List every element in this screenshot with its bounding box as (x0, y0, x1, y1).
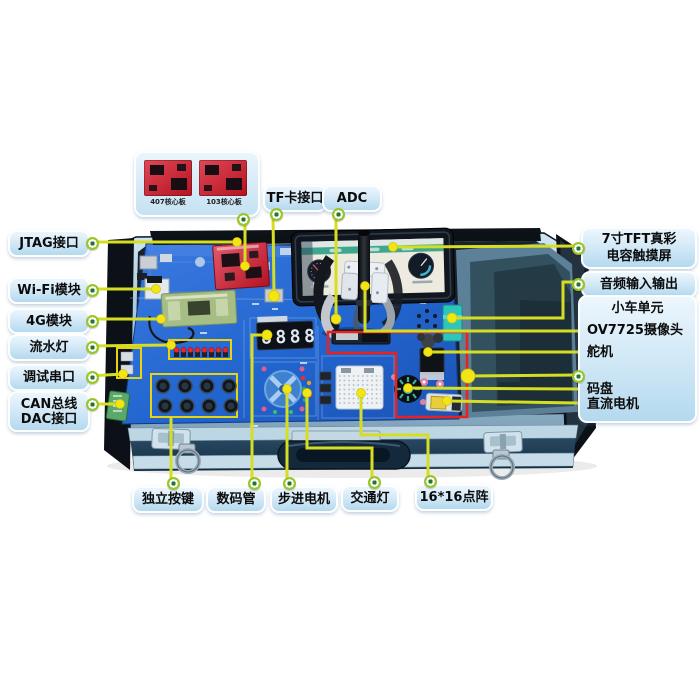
callout-label: 步进电机 (278, 492, 330, 507)
callout-can-dac: CAN总线 DAC接口 (8, 391, 90, 432)
callout-traffic: 交通灯 (341, 485, 399, 512)
car-unit-title: 小车单元 (580, 301, 695, 317)
callout-label: 调试串口 (23, 370, 75, 385)
callout-label: ADC (337, 191, 367, 206)
connector-dot (332, 208, 345, 221)
callout-segment-display: 数码管 (206, 486, 266, 513)
connector-dot (283, 477, 296, 490)
connector-dot (424, 475, 437, 488)
callout-label-line1: CAN总线 (21, 397, 77, 412)
core-board-407-photo (144, 160, 192, 196)
callout-keys: 独立按键 (132, 486, 204, 513)
callout-dot-matrix: 16*16点阵 (415, 484, 493, 511)
connector-dot (86, 341, 99, 354)
4g-module (161, 290, 237, 327)
connector-dot (572, 242, 585, 255)
connector-dot (572, 278, 585, 291)
chip (204, 185, 212, 191)
callout-label: 流水灯 (29, 340, 68, 355)
connector-dot (86, 315, 99, 328)
callout-label: TF卡接口 (267, 191, 324, 206)
connector-dot (237, 213, 250, 226)
core-board-103-photo (199, 160, 247, 196)
servo (417, 333, 444, 388)
dot-matrix (320, 366, 383, 409)
chip (177, 164, 186, 171)
callout-label: 4G模块 (26, 314, 72, 329)
callout-running-led: 流水灯 (8, 334, 90, 361)
connector-dot (86, 398, 99, 411)
callout-jtag: JTAG接口 (8, 230, 90, 257)
chip (226, 178, 242, 190)
chip (149, 185, 157, 191)
chip (150, 165, 164, 175)
callout-car-unit: 小车单元 OV7725摄像头 舵机 码盘 直流电机 (578, 295, 697, 423)
callout-stepper: 步进电机 (270, 486, 338, 513)
car-unit-dc-motor-label: 直流电机 (587, 397, 639, 413)
connector-dot (368, 476, 381, 489)
callout-wifi: Wi-Fi模块 (8, 277, 90, 304)
connector-dot (167, 477, 180, 490)
callout-label: 音频输入输出 (600, 277, 678, 292)
callout-label: 独立按键 (142, 492, 194, 507)
callout-label-line1: 7寸TFT真彩 (602, 231, 677, 248)
core-board-407-caption: 407核心板 (140, 198, 196, 207)
callout-adc: ADC (322, 185, 382, 212)
callout-label-line2: 电容触摸屏 (606, 248, 671, 265)
chip (171, 178, 187, 190)
latch-right (484, 431, 523, 452)
connector-dot (86, 371, 99, 384)
core-board-103-caption: 103核心板 (196, 198, 252, 207)
core-boards-panel: 407核心板 103核心板 (134, 151, 260, 217)
chip (232, 164, 241, 171)
car-unit-servo-label: 舵机 (587, 345, 613, 361)
callout-label: 交通灯 (350, 491, 389, 506)
callout-debug-uart: 调试串口 (8, 364, 90, 391)
callout-4g: 4G模块 (8, 308, 90, 334)
connector-dot (86, 237, 99, 250)
chip (205, 165, 219, 175)
car-unit-encoder-label: 码盘 (587, 382, 613, 398)
callout-label: JTAG接口 (19, 236, 78, 251)
callout-label: Wi-Fi模块 (17, 283, 81, 298)
callout-label: 16*16点阵 (420, 490, 489, 505)
connector-dot (248, 477, 261, 490)
product-diagram: 8888 (0, 0, 700, 700)
connector-dot (270, 208, 283, 221)
callout-audio: 音频输入输出 (581, 271, 697, 298)
callout-tf-card: TF卡接口 (263, 185, 327, 212)
callout-label: 数码管 (216, 492, 255, 507)
car-unit-camera-label: OV7725摄像头 (587, 323, 683, 339)
connector-dot (572, 370, 585, 383)
callout-tft: 7寸TFT真彩 电容触摸屏 (581, 227, 697, 269)
callout-label-line2: DAC接口 (21, 412, 77, 427)
connector-dot (86, 284, 99, 297)
